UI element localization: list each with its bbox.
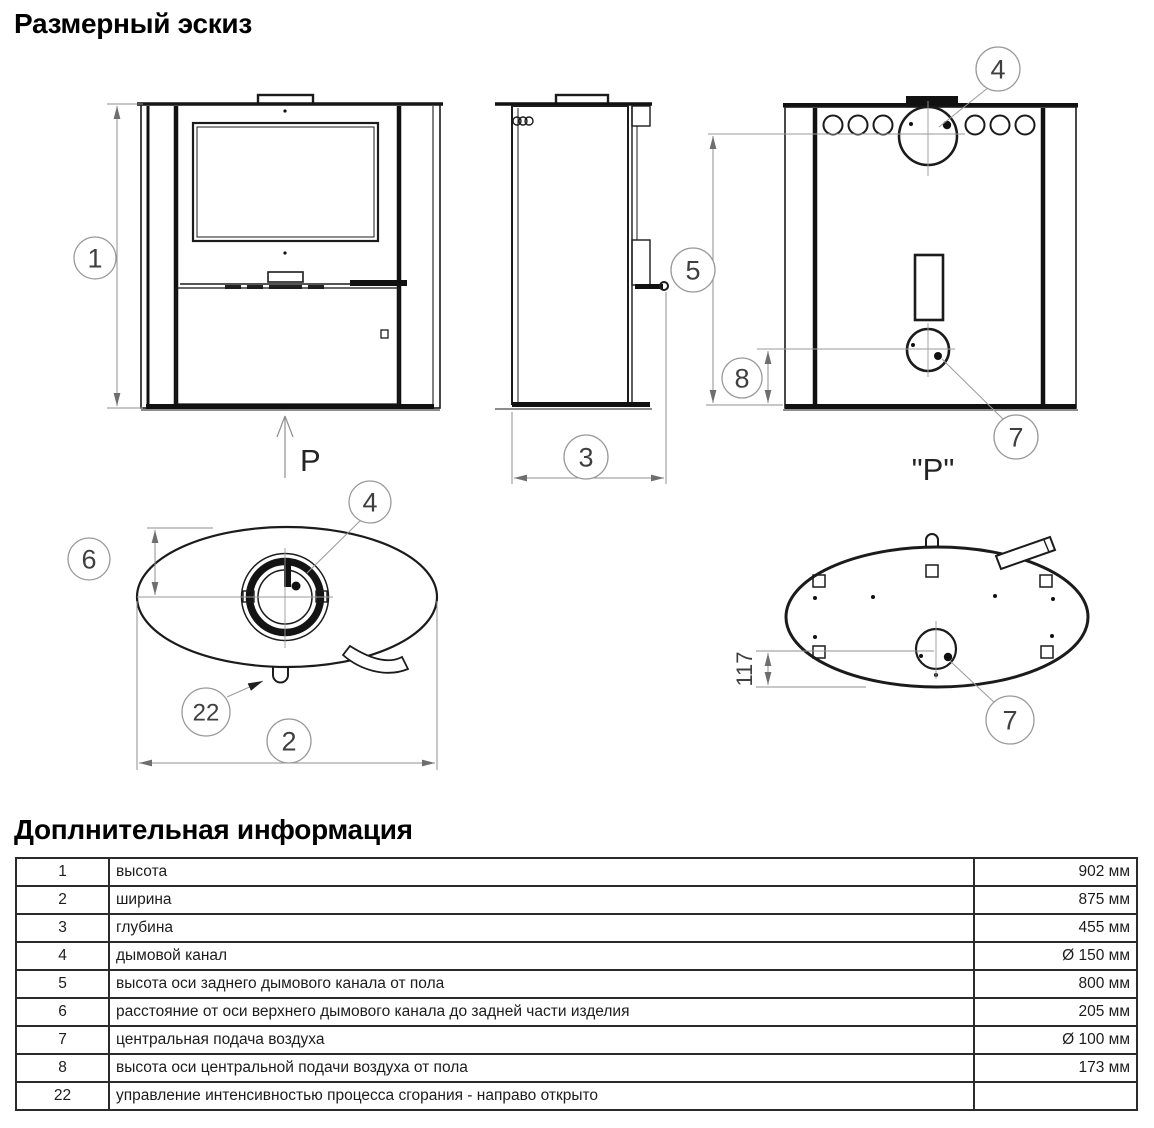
table-row: 3 глубина 455 мм [16, 914, 1137, 942]
table-row: 22 управление интенсивностью процесса сг… [16, 1082, 1137, 1110]
bottom-plate [786, 547, 1088, 687]
stove-body-front [141, 104, 440, 408]
svg-text:7: 7 [1002, 706, 1017, 736]
row-description: расстояние от оси верхнего дымового кана… [109, 998, 974, 1026]
svg-text:3: 3 [578, 443, 593, 473]
row-description: высота оси центральной подачи воздуха от… [109, 1054, 974, 1082]
rear-flue-box-side [632, 240, 650, 285]
front-direction-arrow [277, 416, 293, 478]
door-glass-front [193, 123, 378, 241]
row-description: центральная подача воздуха [109, 1026, 974, 1054]
row-value: 902 мм [974, 858, 1137, 886]
row-description: управление интенсивностью процесса сгора… [109, 1082, 974, 1110]
row-description: высота [109, 858, 974, 886]
row-value: 455 мм [974, 914, 1137, 942]
rear-service-plate [915, 255, 943, 320]
door-handle-top [343, 646, 408, 673]
row-number: 3 [16, 914, 109, 942]
vent-holes-rear [824, 116, 1035, 135]
svg-text:5: 5 [685, 256, 700, 286]
row-value: 800 мм [974, 970, 1137, 998]
svg-text:2: 2 [281, 727, 296, 757]
air-control-knob-top [273, 666, 288, 683]
table-row: 6 расстояние от оси верхнего дымового ка… [16, 998, 1137, 1026]
row-number: 8 [16, 1054, 109, 1082]
row-number: 7 [16, 1026, 109, 1054]
svg-text:4: 4 [990, 55, 1005, 85]
table-row: 7 центральная подача воздуха Ø 100 мм [16, 1026, 1137, 1054]
svg-text:6: 6 [81, 545, 96, 575]
row-description: высота оси заднего дымового канала от по… [109, 970, 974, 998]
door-handle-front [268, 272, 303, 282]
row-description: дымовой канал [109, 942, 974, 970]
front-view [137, 95, 443, 410]
row-value: 205 мм [974, 998, 1137, 1026]
svg-text:22: 22 [193, 700, 220, 727]
leader-air-rear [942, 359, 1004, 420]
rear-view-label: "P" [912, 452, 955, 487]
dimension-117 [756, 651, 934, 687]
row-description: глубина [109, 914, 974, 942]
table-row: 1 высота 902 мм [16, 858, 1137, 886]
rivet-dots [813, 594, 1055, 677]
svg-text:7: 7 [1008, 423, 1023, 453]
leader-air-control [227, 681, 263, 697]
rear-view [708, 96, 1078, 410]
side-view [495, 95, 668, 409]
row-number: 6 [16, 998, 109, 1026]
table-row: 2 ширина 875 мм [16, 886, 1137, 914]
section-title-additional-info: Доплнительная информация [14, 814, 413, 846]
stove-body-rear [785, 107, 1076, 408]
dim-117-label: 117 [732, 651, 757, 686]
row-number: 4 [16, 942, 109, 970]
air-control-knob-bottom [926, 534, 938, 547]
table-row: 8 высота оси центральной подачи воздуха … [16, 1054, 1137, 1082]
additional-info-table: 1 высота 902 мм 2 ширина 875 мм 3 глубин… [15, 857, 1138, 1111]
table-row: 4 дымовой канал Ø 150 мм [16, 942, 1137, 970]
table-row: 5 высота оси заднего дымового канала от … [16, 970, 1137, 998]
row-number: 2 [16, 886, 109, 914]
row-value: Ø 150 мм [974, 942, 1137, 970]
front-direction-label: P [300, 443, 321, 478]
hinge-icon [525, 117, 533, 125]
row-number: 1 [16, 858, 109, 886]
row-value: Ø 100 мм [974, 1026, 1137, 1054]
row-value: 875 мм [974, 886, 1137, 914]
svg-text:4: 4 [362, 488, 377, 518]
top-view [137, 527, 437, 683]
row-description: ширина [109, 886, 974, 914]
svg-text:1: 1 [87, 244, 102, 274]
mounting-squares [813, 565, 1053, 658]
stove-body-side [512, 106, 628, 404]
row-number: 22 [16, 1082, 109, 1110]
dimensional-sketch-drawing: P [0, 0, 1154, 800]
row-number: 5 [16, 970, 109, 998]
bottom-view [786, 534, 1088, 687]
page: { "headings": { "dimensional_sketch": "Р… [0, 0, 1154, 1128]
door-handle-bottom [996, 537, 1055, 569]
row-value: 173 мм [974, 1054, 1137, 1082]
row-value [974, 1082, 1137, 1110]
svg-text:8: 8 [734, 364, 749, 394]
